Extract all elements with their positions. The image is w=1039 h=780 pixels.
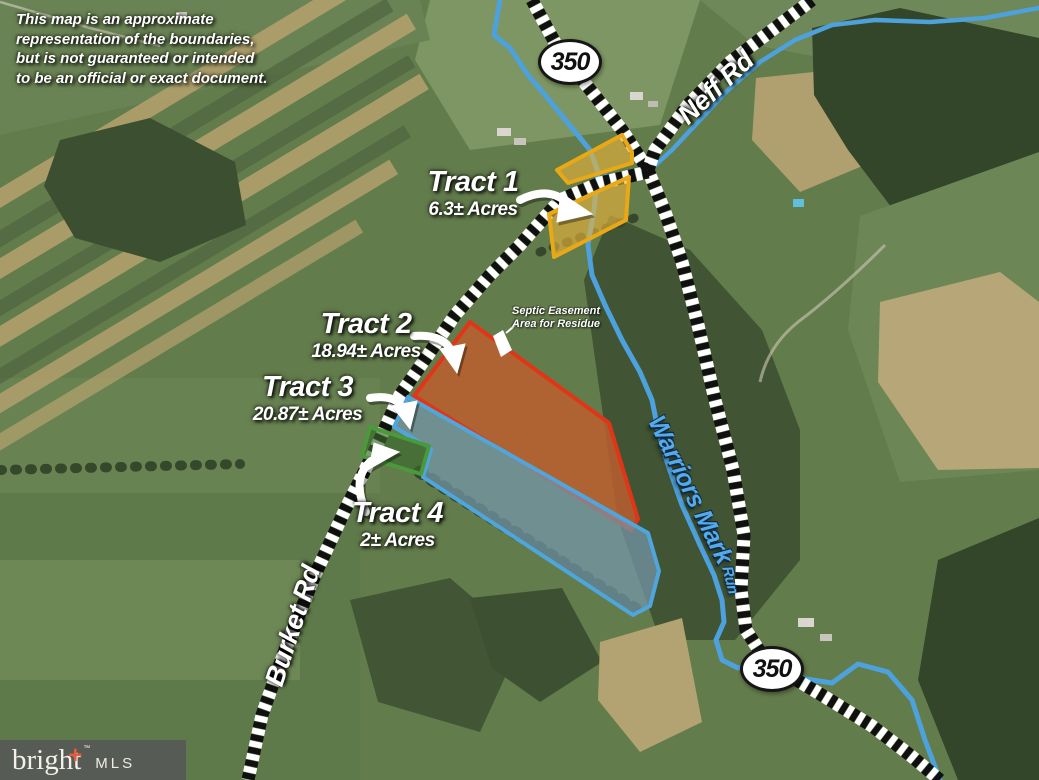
bright-mls-plus-icon: + bbox=[68, 744, 82, 768]
bright-mls-logo: bright+™MLS bbox=[0, 740, 186, 780]
tract-1-title: Tract 1 bbox=[418, 168, 528, 198]
building bbox=[630, 92, 643, 100]
tract-4-acreage: 2± Acres bbox=[345, 531, 450, 550]
tract-2-acreage: 18.94± Acres bbox=[296, 342, 436, 361]
map-svg bbox=[0, 0, 1039, 780]
tract-3-acreage: 20.87± Acres bbox=[240, 405, 375, 424]
tract-2-title: Tract 2 bbox=[296, 310, 436, 340]
route-350-shield-south-label: 350 bbox=[753, 655, 792, 684]
pond bbox=[793, 199, 804, 207]
building bbox=[497, 128, 511, 136]
route-350-shield-south: 350 bbox=[740, 646, 804, 692]
building bbox=[648, 101, 658, 107]
tract-3-title: Tract 3 bbox=[240, 373, 375, 403]
tract-4-title: Tract 4 bbox=[345, 499, 450, 529]
tract-4-label: Tract 4 2± Acres bbox=[345, 499, 450, 550]
field-patch bbox=[0, 560, 300, 680]
aerial-tract-map: This map is an approximate representatio… bbox=[0, 0, 1039, 780]
septic-easement-line2: Area for Residue bbox=[512, 318, 600, 331]
septic-easement-label: Septic Easement Area for Residue bbox=[512, 305, 600, 331]
tract-3-label: Tract 3 20.87± Acres bbox=[240, 373, 375, 424]
bright-mls-suffix: MLS bbox=[95, 755, 135, 772]
tract-2-label: Tract 2 18.94± Acres bbox=[296, 310, 436, 361]
tract-1-label: Tract 1 6.3± Acres bbox=[418, 168, 528, 219]
building bbox=[798, 618, 814, 627]
building bbox=[820, 634, 832, 641]
disclaimer-text: This map is an approximate representatio… bbox=[16, 10, 268, 88]
bright-mls-trademark: ™ bbox=[83, 745, 90, 752]
route-350-shield-north-label: 350 bbox=[551, 48, 590, 77]
tract-1-acreage: 6.3± Acres bbox=[418, 200, 528, 219]
route-350-shield-north: 350 bbox=[538, 39, 602, 85]
building bbox=[514, 138, 526, 145]
septic-easement-line1: Septic Easement bbox=[512, 305, 600, 318]
